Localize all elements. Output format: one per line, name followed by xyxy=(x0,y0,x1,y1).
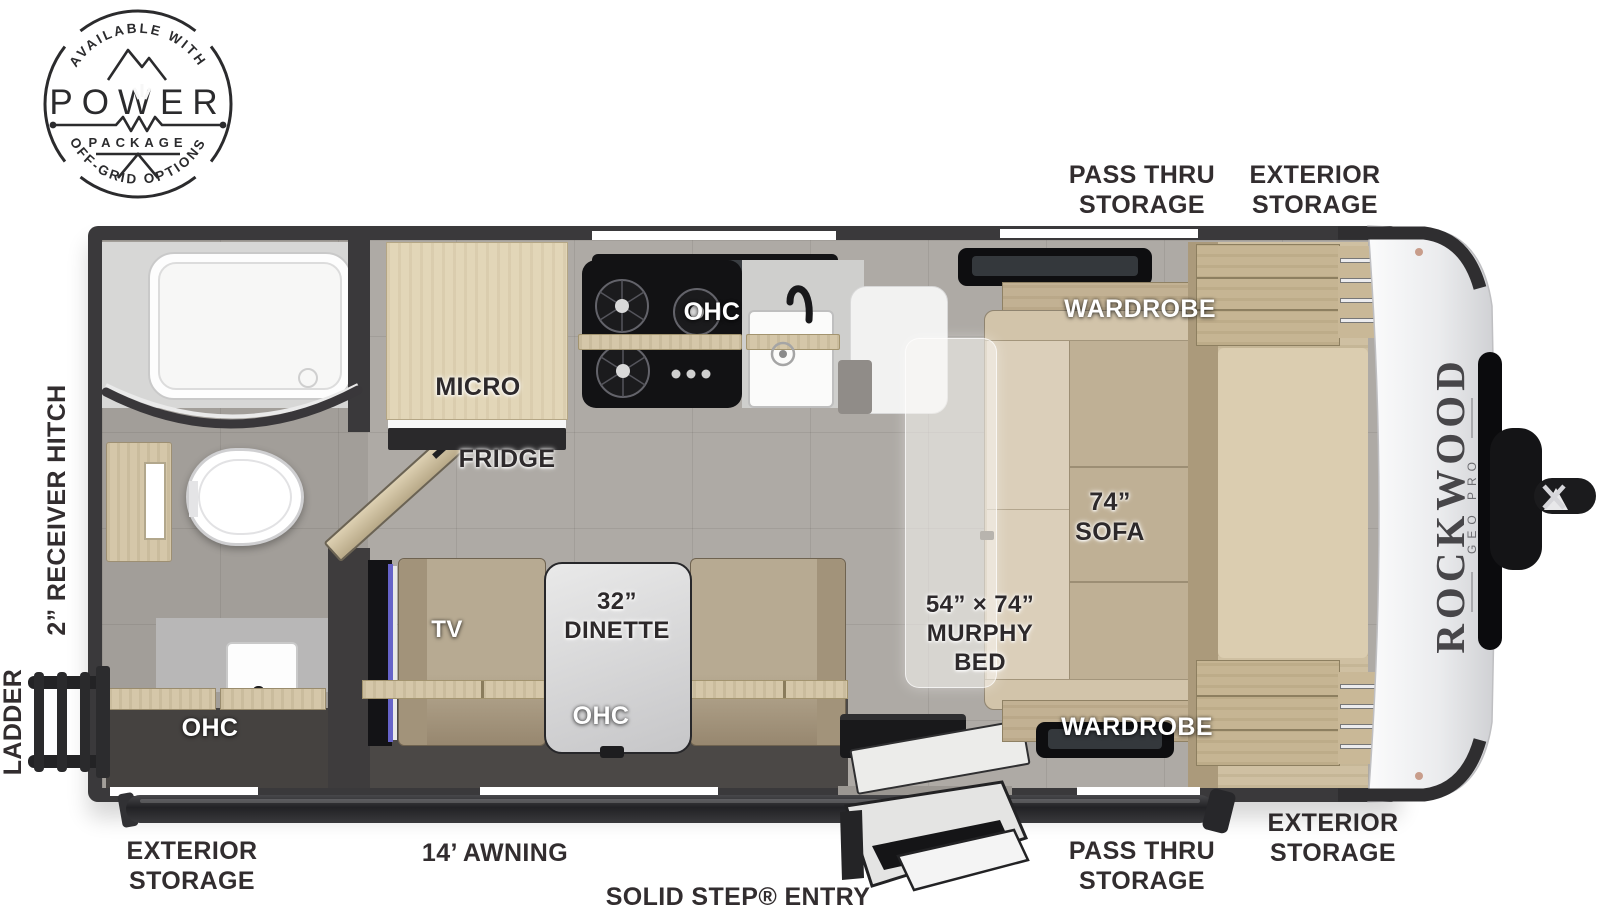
ladder-mount xyxy=(96,666,110,778)
front-cap: ROCKWOOD GEO PRO xyxy=(1338,226,1502,802)
cap-rivet xyxy=(1415,772,1423,780)
solid-step-steps xyxy=(840,782,1028,890)
hitch-jack xyxy=(1490,428,1596,570)
ladder-rung xyxy=(80,672,90,772)
floorplan-page: AVAILABLE WITH POWER PACKAGE OFF-GRID OP… xyxy=(0,0,1600,909)
exterior-details: ROCKWOOD GEO PRO xyxy=(0,0,1600,909)
brand-model: GEO PRO xyxy=(1465,456,1479,554)
ladder-rung xyxy=(34,672,44,772)
ladder-rung xyxy=(57,672,67,772)
cap-rivet xyxy=(1415,248,1423,256)
